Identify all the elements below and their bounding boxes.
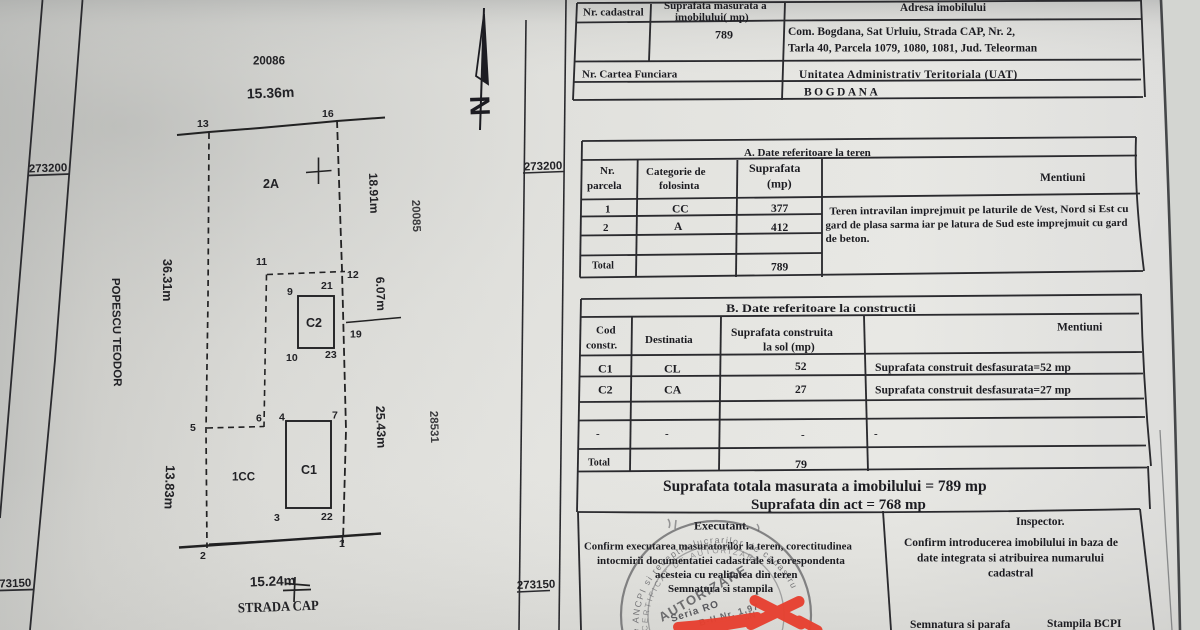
svg-text:C2: C2 — [306, 316, 322, 330]
svg-text:377: 377 — [771, 203, 789, 215]
svg-text:Nr. cadastral: Nr. cadastral — [583, 7, 644, 19]
svg-text:Adresa imobilului: Adresa imobilului — [900, 2, 987, 14]
svg-text:STRADA CAP: STRADA CAP — [238, 599, 320, 617]
svg-text:412: 412 — [771, 222, 789, 234]
svg-text:Suprafata construit desfasurat: Suprafata construit desfasurata=27 mp — [875, 384, 1071, 397]
svg-text:Suprafata construit desfasurat: Suprafata construit desfasurata=52 mp — [875, 361, 1071, 374]
svg-text:de beton.: de beton. — [826, 234, 870, 245]
svg-text:CC: CC — [672, 204, 689, 216]
svg-text:16: 16 — [322, 108, 334, 120]
svg-text:15.24m: 15.24m — [250, 573, 296, 590]
svg-text:20086: 20086 — [253, 56, 285, 68]
svg-text:Total: Total — [592, 261, 614, 272]
svg-text:date integrata si atribuirea n: date integrata si atribuirea numarului — [917, 553, 1105, 565]
svg-text:C1: C1 — [598, 362, 613, 376]
svg-text:4: 4 — [279, 412, 285, 424]
svg-text:52: 52 — [795, 361, 807, 373]
svg-text:Cod: Cod — [596, 325, 616, 337]
svg-text:11: 11 — [256, 256, 267, 268]
svg-text:Nr.: Nr. — [600, 165, 615, 177]
svg-text:Mentiuni: Mentiuni — [1057, 322, 1103, 334]
svg-text:79: 79 — [795, 457, 807, 471]
svg-text:7: 7 — [332, 410, 338, 422]
svg-text:Nr. Cartea Funciara: Nr. Cartea Funciara — [582, 69, 678, 81]
svg-text:13.83m: 13.83m — [161, 465, 178, 510]
svg-text:15.36m: 15.36m — [247, 84, 295, 102]
svg-text:9: 9 — [287, 286, 293, 298]
svg-text:Suprafata masurata a: Suprafata masurata a — [664, 0, 767, 12]
svg-text:789: 789 — [715, 28, 733, 42]
svg-text:la sol (mp): la sol (mp) — [763, 342, 815, 354]
svg-text:273150: 273150 — [517, 579, 556, 592]
svg-text:Categorie de: Categorie de — [646, 166, 706, 178]
svg-text:N: N — [464, 95, 496, 116]
svg-text:789: 789 — [771, 262, 789, 274]
svg-text:Suprafata: Suprafata — [749, 161, 800, 175]
svg-text:19: 19 — [350, 329, 362, 341]
svg-text:cadastral: cadastral — [988, 568, 1033, 580]
svg-text:3: 3 — [274, 512, 280, 524]
svg-text:A. Date referitoare la teren: A. Date referitoare la teren — [744, 147, 871, 159]
svg-text:36.31m: 36.31m — [160, 259, 174, 301]
svg-text:21: 21 — [321, 280, 333, 292]
svg-text:Total: Total — [588, 458, 610, 469]
svg-text:Suprafata construita: Suprafata construita — [731, 327, 833, 339]
svg-text:18.91m: 18.91m — [366, 173, 381, 214]
svg-text:Suprafata din act = 768 mp: Suprafata din act = 768 mp — [751, 497, 926, 513]
svg-text:1CC: 1CC — [232, 472, 255, 484]
svg-text:A: A — [674, 221, 683, 233]
svg-text:20085: 20085 — [409, 200, 422, 233]
svg-text:POPESCU TEODOR: POPESCU TEODOR — [109, 278, 123, 388]
svg-text:25.43m: 25.43m — [373, 406, 388, 449]
svg-text:Confirm introducerea imobilulu: Confirm introducerea imobilului in baza … — [904, 537, 1118, 549]
svg-text:CL: CL — [664, 362, 681, 376]
svg-text:BOGDANA: BOGDANA — [804, 87, 880, 99]
svg-text:13: 13 — [197, 118, 209, 130]
svg-text:-: - — [874, 428, 878, 440]
svg-text:Suprafata totala masurata a im: Suprafata totala masurata a imobilului =… — [663, 478, 987, 495]
svg-text:1: 1 — [605, 204, 611, 216]
svg-text:27: 27 — [795, 384, 807, 396]
svg-text:273200: 273200 — [524, 160, 563, 173]
svg-text:273200: 273200 — [29, 162, 68, 175]
svg-text:(mp): (mp) — [767, 177, 792, 191]
svg-text:C2: C2 — [598, 383, 613, 397]
svg-text:28531: 28531 — [427, 411, 440, 444]
svg-text:22: 22 — [321, 511, 333, 523]
svg-text:6.07m: 6.07m — [373, 277, 388, 311]
svg-text:-: - — [665, 428, 669, 440]
svg-text:-: - — [596, 428, 600, 440]
svg-text:5: 5 — [190, 422, 196, 434]
svg-text:1: 1 — [339, 538, 345, 550]
svg-text:Unitatea Administrativ Teritor: Unitatea Administrativ Teritoriala (UAT) — [799, 69, 1018, 81]
svg-text:imobilului( mp): imobilului( mp) — [675, 12, 749, 24]
svg-text:12: 12 — [347, 269, 359, 281]
svg-text:folosinta: folosinta — [659, 180, 700, 192]
svg-text:B. Date referitoare la constru: B. Date referitoare la constructii — [726, 303, 916, 315]
svg-text:-: - — [801, 429, 805, 441]
svg-text:CA: CA — [664, 383, 682, 397]
svg-text:2: 2 — [603, 222, 609, 234]
svg-text:Tarla 40, Parcela 1079, 1080,: Tarla 40, Parcela 1079, 1080, 1081, Jud.… — [788, 43, 1038, 55]
svg-text:constr.: constr. — [586, 340, 617, 352]
svg-text:Mentiuni: Mentiuni — [1040, 172, 1086, 184]
svg-text:2: 2 — [200, 550, 206, 562]
svg-text:C1: C1 — [301, 463, 317, 477]
svg-text:273150: 273150 — [0, 577, 31, 590]
svg-text:Semnatura si parafa: Semnatura si parafa — [910, 619, 1011, 630]
svg-text:6: 6 — [256, 413, 262, 425]
svg-text:Stampila BCPI: Stampila BCPI — [1047, 618, 1122, 630]
svg-text:23: 23 — [325, 349, 337, 361]
svg-text:Inspector.: Inspector. — [1016, 516, 1065, 528]
svg-text:2A: 2A — [263, 177, 279, 191]
svg-text:parcela: parcela — [587, 180, 622, 192]
svg-text:10: 10 — [286, 352, 298, 364]
svg-text:Com. Bogdana, Sat Urluiu, Stra: Com. Bogdana, Sat Urluiu, Strada CAP, Nr… — [788, 26, 1015, 38]
svg-text:Destinatia: Destinatia — [645, 334, 693, 346]
